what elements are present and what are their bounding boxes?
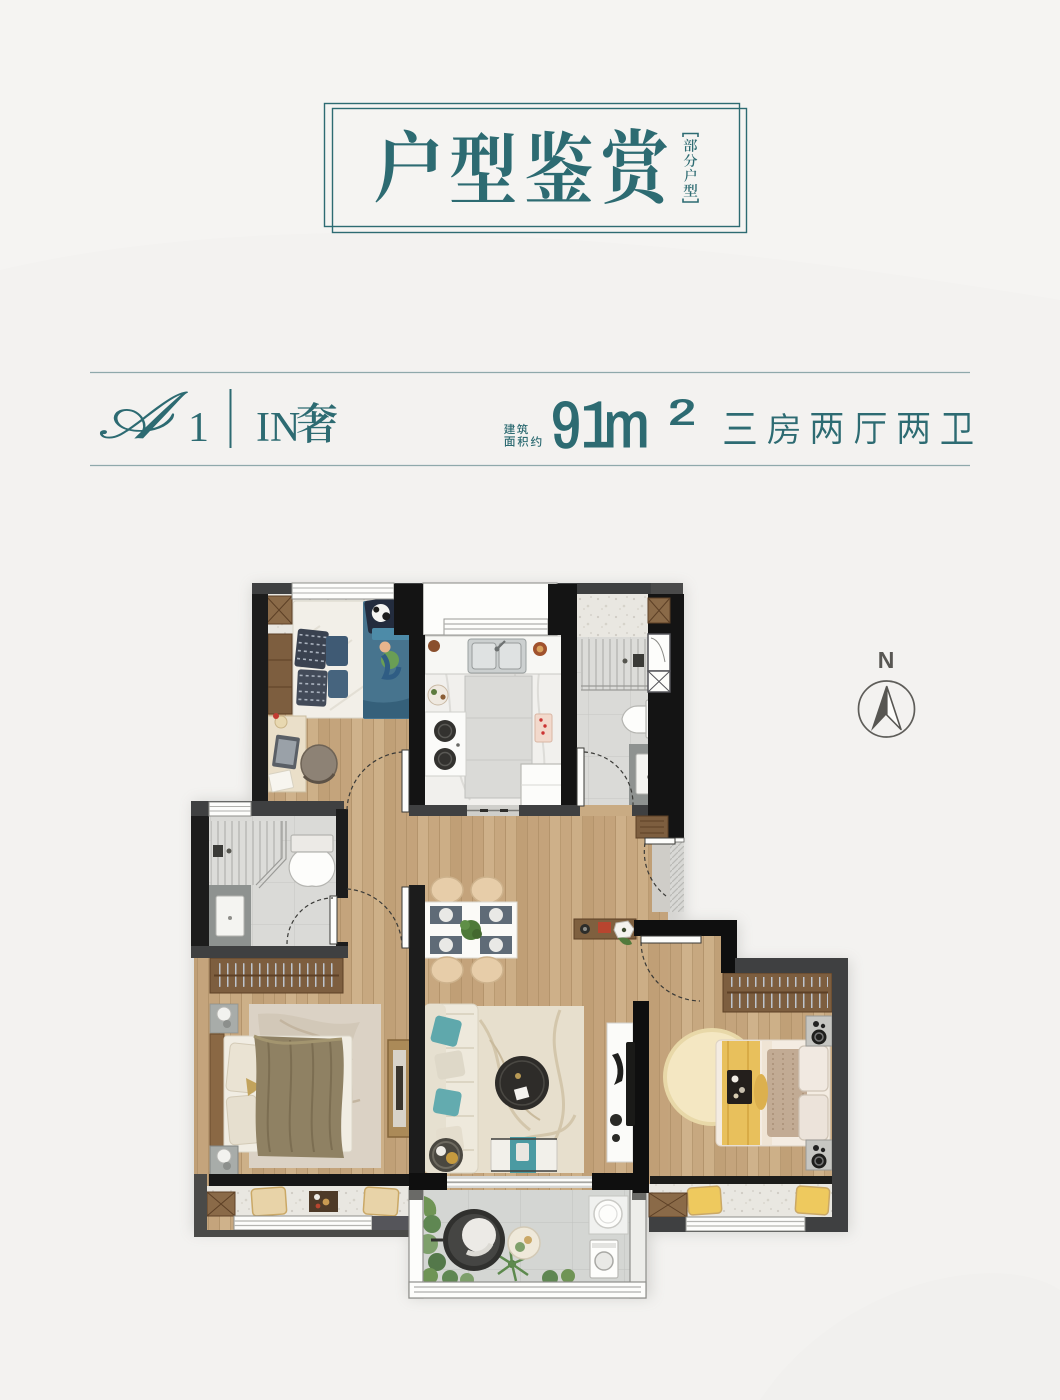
svg-text:N: N xyxy=(878,647,895,673)
svg-text:1: 1 xyxy=(188,405,209,451)
svg-text:IN: IN xyxy=(256,405,300,451)
